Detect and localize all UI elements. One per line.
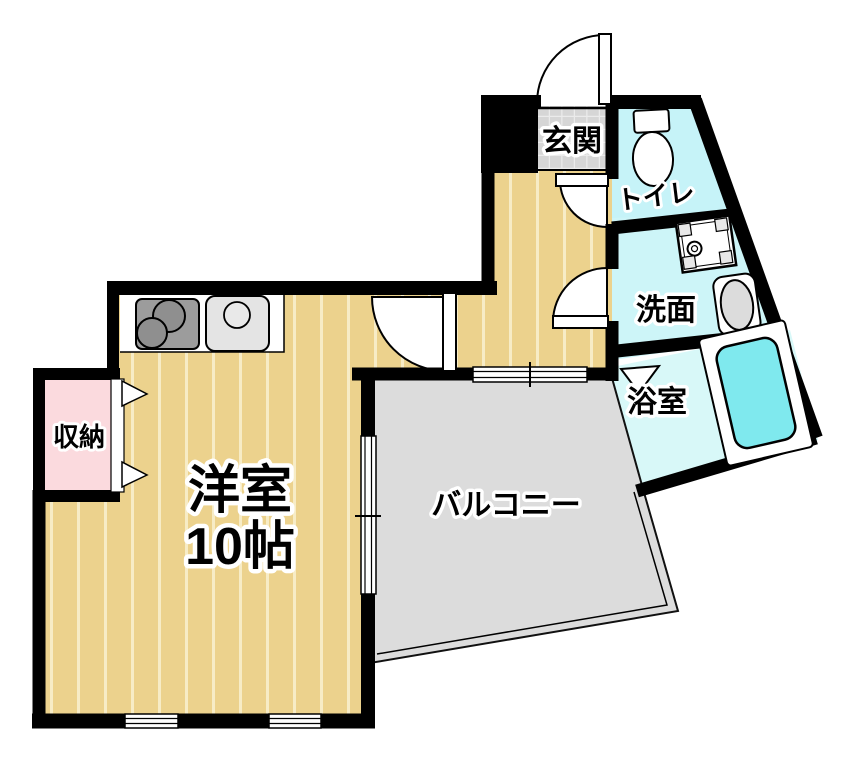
stove-icon <box>136 299 199 349</box>
kitchen-sink-icon <box>206 296 269 351</box>
main-room-label: 洋室 <box>188 462 292 520</box>
washroom-label: 洗面 <box>636 294 696 327</box>
bathroom-label: 浴室 <box>627 385 687 419</box>
entrance-swing-door-icon <box>537 34 611 104</box>
toilet-icon <box>630 109 674 187</box>
room-door-leaf <box>443 293 456 371</box>
toilet-door-leaf <box>556 174 608 186</box>
washroom-door-leaf <box>553 316 608 328</box>
entrance-pillar-wall <box>481 101 538 173</box>
bottom-window-icon <box>125 714 178 728</box>
washing-machine-icon <box>676 215 736 272</box>
floor-plan-svg: 玄関 トイレ 洗面 浴室 収納 洋室 10帖 バルコニー <box>0 0 848 762</box>
genkan-label: 玄関 <box>542 124 602 158</box>
balcony-label: バルコニー <box>431 489 580 522</box>
main-room-size-label: 10帖 <box>185 518 295 576</box>
bottom-window-icon-2 <box>269 714 321 728</box>
closet-label: 収納 <box>53 422 105 452</box>
floor-plan: 玄関 トイレ 洗面 浴室 収納 洋室 10帖 バルコニー <box>0 0 848 762</box>
